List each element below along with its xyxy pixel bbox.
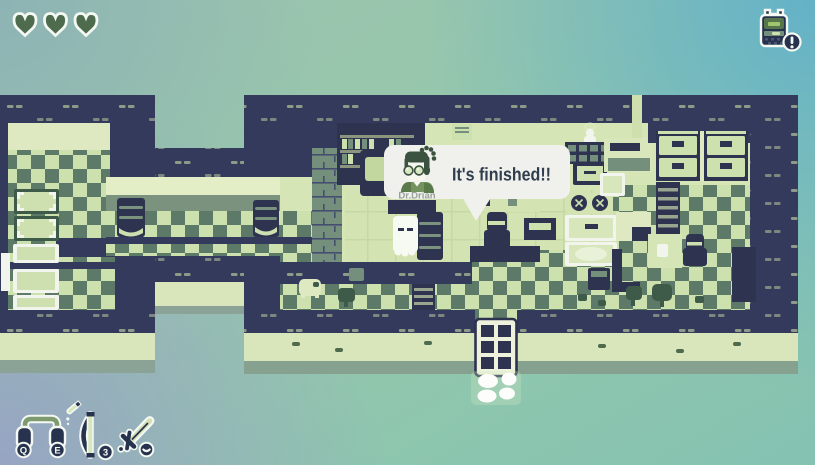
svg-text:Dr.Drian: Dr.Drian: [398, 191, 435, 202]
svg-text:Q: Q: [20, 446, 27, 457]
svg-text:E: E: [54, 446, 60, 457]
svg-text:It's finished!!: It's finished!!: [452, 164, 551, 185]
svg-text:3: 3: [103, 448, 108, 459]
